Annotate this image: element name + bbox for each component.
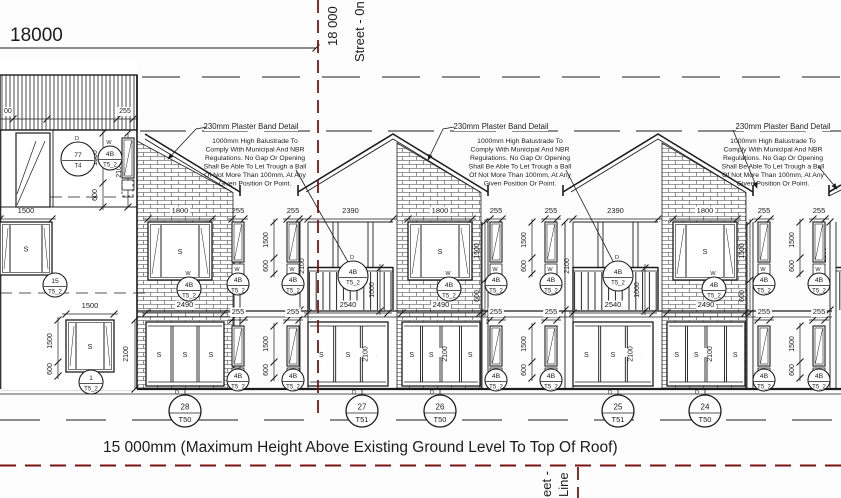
dim-label: 255 (287, 307, 300, 316)
opening-mark: W (492, 267, 498, 273)
opening-mark: W (815, 267, 821, 273)
balustrade-note-line: Shall Be Able To Let Trough a Ball (204, 164, 307, 171)
dim-label: 255 (813, 206, 826, 215)
dim-label: 600 (47, 363, 54, 375)
balustrade-note-line: Of Not More Than 100mm, At Any (204, 172, 306, 179)
glass-mark: S (177, 247, 182, 256)
dim-label: 2390 (342, 206, 359, 215)
window-panel (122, 180, 134, 190)
opening-mark: D (350, 255, 354, 261)
opening-mark: W (547, 267, 553, 273)
opening-no: 4B (234, 277, 243, 284)
glass-mark: S (183, 352, 188, 359)
dim-label: 255 (490, 307, 503, 316)
balustrade-note-line: Given Position Or Point. (737, 181, 810, 188)
glass-mark: S (346, 352, 351, 359)
glass-mark: S (437, 247, 442, 256)
unit-number: 25 (614, 403, 623, 412)
elevation-drawing-canvas: S18002490SSSS18002490SSSS210015006002390… (0, 0, 841, 498)
dim-label: 600 (521, 364, 528, 376)
dim-label: 1800 (697, 206, 714, 215)
glass-mark: S (584, 352, 589, 359)
glass-mark: S (23, 245, 28, 254)
dim-label: 2390 (607, 206, 624, 215)
balusters (836, 272, 841, 310)
unit-door-mark: D (608, 390, 612, 396)
dim-label: 600 (521, 260, 528, 272)
opening-no: 4B (710, 282, 719, 289)
opening-label-circle (338, 261, 368, 291)
opening-mark: W (710, 271, 716, 277)
opening-mark: W (185, 271, 191, 277)
top-dimension-18000: 18000 (10, 25, 63, 46)
dim-label: 255 (232, 307, 245, 316)
street-line-top-label: Street - 0n (352, 1, 367, 62)
balustrade-note-line: Comply With Municipal And NBR (206, 147, 305, 154)
dim-label: 600 (92, 189, 99, 201)
opening-no: 4B (760, 373, 769, 380)
dim-label: 1500 (18, 206, 35, 215)
leader-line (428, 127, 454, 160)
unit-door-mark: D (175, 390, 179, 396)
opening-code: T5_2 (812, 385, 826, 391)
unit-number: 27 (358, 403, 367, 412)
dim-label: 255 (758, 307, 771, 316)
dim-label: 255 (119, 108, 131, 115)
opening-mark: D (615, 255, 619, 261)
opening-code: T5_2 (231, 289, 245, 295)
opening-code: T5_2 (544, 385, 558, 391)
dim-label: 2100 (362, 346, 369, 362)
generated-drawing-geometry: S18002490SSSS18002490SSSS210015006002390… (0, 0, 841, 498)
dim-label: 255 (758, 206, 771, 215)
opening-code: T5_2 (544, 289, 558, 295)
opening-label-circle (603, 261, 633, 291)
dim-label: 2100 (564, 258, 571, 274)
street-line-top-dim: 18 000 (325, 6, 340, 46)
dim-label: 255 (813, 307, 826, 316)
leader-line (168, 127, 207, 159)
opening-no: 4B (614, 269, 623, 276)
unit-door-mark: D (352, 390, 356, 396)
unit-type: T50 (179, 415, 192, 424)
opening-code: T5_2 (346, 281, 360, 287)
dim-label: 600 (474, 290, 481, 302)
opening-code: T5_2 (442, 294, 456, 300)
opening-no: 4B (445, 282, 454, 289)
dim-label: 1500 (474, 243, 481, 259)
opening-code: T5_2 (286, 385, 300, 391)
opening-code: T5_2 (103, 163, 117, 169)
dim-label: 1500 (789, 336, 796, 352)
opening-code: T5_2 (757, 385, 771, 391)
glass-mark: S (674, 352, 679, 359)
opening-code: T4 (74, 164, 82, 170)
opening-no: 4B (815, 277, 824, 284)
plaster-band-label: 230mm Plaster Band Detail (736, 122, 831, 131)
glass-mark: S (409, 352, 414, 359)
dim-label: 1500 (789, 232, 796, 248)
dim-label: 1500 (47, 333, 54, 349)
street-elevation-drawing: S18002490SSSS18002490SSSS210015006002390… (0, 0, 841, 498)
opening-no: 4B (185, 282, 194, 289)
balustrade-note-line: Comply With Municipal And NBR (724, 147, 823, 154)
opening-code: T5_2 (757, 289, 771, 295)
dim-label: 600 (263, 364, 270, 376)
opening-no: 4B (547, 277, 556, 284)
opening-no: 4B (289, 373, 298, 380)
dim-label: 1000 (369, 282, 376, 298)
opening-no: 77 (74, 152, 82, 159)
dim-label: 600 (739, 290, 746, 302)
dim-label: 2100 (442, 346, 449, 362)
dim-label: 2100 (627, 346, 634, 362)
opening-code: T5_2 (84, 387, 98, 393)
max-height-note: 15 000mm (Maximum Height Above Existing … (103, 439, 618, 456)
opening-mark: W (760, 267, 766, 273)
balustrade-note-line: Shall Be Able To Let Trough a Ball (722, 164, 825, 171)
dim-label: 1500 (521, 336, 528, 352)
balustrade-note-line: Regulations. No Gap Or Opening (723, 155, 823, 162)
opening-mark: W (445, 271, 451, 277)
opening-no: 4B (815, 373, 824, 380)
opening-mark: W (106, 140, 112, 146)
opening-code: T5_2 (231, 385, 245, 391)
balustrade-note-line: Given Position Or Point. (219, 181, 292, 188)
street-line-bottom-partial: eet - (539, 471, 554, 497)
unit-type: T51 (356, 415, 369, 424)
dim-label: 255 (232, 206, 245, 215)
opening-no: 4B (234, 373, 243, 380)
street-line-bottom-label: Line (556, 472, 571, 497)
dim-label: 1800 (432, 206, 449, 215)
opening-mark: W (289, 267, 295, 273)
glass-mark: S (702, 247, 707, 256)
glass-mark: S (157, 352, 162, 359)
balustrade-note-line: Regulations. No Gap Or Opening (205, 155, 305, 162)
glass-mark: S (319, 352, 324, 359)
leader-line (296, 170, 352, 269)
opening-code: T5_2 (489, 385, 503, 391)
dim-label: 00 (4, 108, 12, 115)
opening-mark: W (234, 267, 240, 273)
glass-mark: S (209, 352, 214, 359)
unit-type: T50 (699, 415, 712, 424)
balustrade-note-line: 1000mm High Balustrade To (730, 138, 816, 145)
opening-code: T5_2 (286, 289, 300, 295)
dim-label: 1500 (263, 336, 270, 352)
dim-label: 2100 (707, 346, 714, 362)
dim-label: 1500 (263, 232, 270, 248)
unit-number: 28 (181, 403, 190, 412)
balustrade-note-line: 1000mm High Balustrade To (212, 138, 298, 145)
dim-label: 2100 (123, 346, 130, 362)
dim-label: 1500 (739, 243, 746, 259)
opening-code: T5_2 (707, 294, 721, 300)
balustrade-note-line: 1000mm High Balustrade To (477, 138, 563, 145)
unit-door-mark: D (430, 390, 434, 396)
opening-no: 4B (547, 373, 556, 380)
glass-mark: S (87, 342, 92, 351)
dim-label: 600 (789, 260, 796, 272)
opening-code: T5_2 (611, 281, 625, 287)
dim-label: 255 (287, 206, 300, 215)
dim-label: 1800 (172, 206, 189, 215)
plaster-band-label: 230mm Plaster Band Detail (204, 122, 299, 131)
dim-label: 600 (263, 260, 270, 272)
glass-mark: S (733, 352, 738, 359)
dim-label: 2100 (299, 258, 306, 274)
opening-code: T5_2 (489, 289, 503, 295)
dim-label: 2540 (605, 300, 622, 309)
balustrade-note-line: Comply With Municipal And NBR (471, 147, 570, 154)
leader-line (566, 170, 617, 269)
opening-mark: D (75, 136, 79, 142)
dim-label: 600 (789, 364, 796, 376)
plaster-band-label: 230mm Plaster Band Detail (454, 122, 549, 131)
opening-code: T5_2 (182, 294, 196, 300)
glass-mark: S (429, 352, 434, 359)
unit-number: 26 (436, 403, 445, 412)
unit-door-mark: D (695, 390, 699, 396)
side-roof-band (0, 75, 137, 130)
glass-mark: S (468, 352, 473, 359)
balustrade-note-line: Of Not More Than 100mm, At Any (722, 172, 824, 179)
opening-code: T5_2 (48, 290, 62, 296)
dim-label: 1500 (521, 232, 528, 248)
balustrade-note-line: Shall Be Able To Let Trough a Ball (469, 164, 572, 171)
dim-label: 1000 (634, 282, 641, 298)
unit-type: T51 (612, 415, 625, 424)
opening-label-circle (61, 142, 95, 176)
opening-no: 4B (106, 151, 115, 158)
opening-no: 4B (289, 277, 298, 284)
dim-label: 1500 (82, 301, 99, 310)
opening-no: 4B (492, 277, 501, 284)
balustrade-note-line: Of Not More Than 100mm, At Any (469, 172, 571, 179)
unit-type: T50 (434, 415, 447, 424)
glass-mark: S (694, 352, 699, 359)
dim-label: 255 (545, 307, 558, 316)
dim-label: 255 (490, 206, 503, 215)
balustrade-note-line: Given Position Or Point. (484, 181, 557, 188)
dim-label: 255 (545, 206, 558, 215)
opening-no: 1 (89, 375, 93, 382)
unit-number: 24 (701, 403, 710, 412)
opening-no: 4B (349, 269, 358, 276)
glass-mark: S (611, 352, 616, 359)
opening-no: 4B (760, 277, 769, 284)
opening-no: 4B (492, 373, 501, 380)
balustrade-note-line: Regulations. No Gap Or Opening (470, 155, 570, 162)
opening-code: T5_2 (812, 289, 826, 295)
dim-label: 2540 (340, 300, 357, 309)
opening-no: 15 (51, 278, 59, 285)
